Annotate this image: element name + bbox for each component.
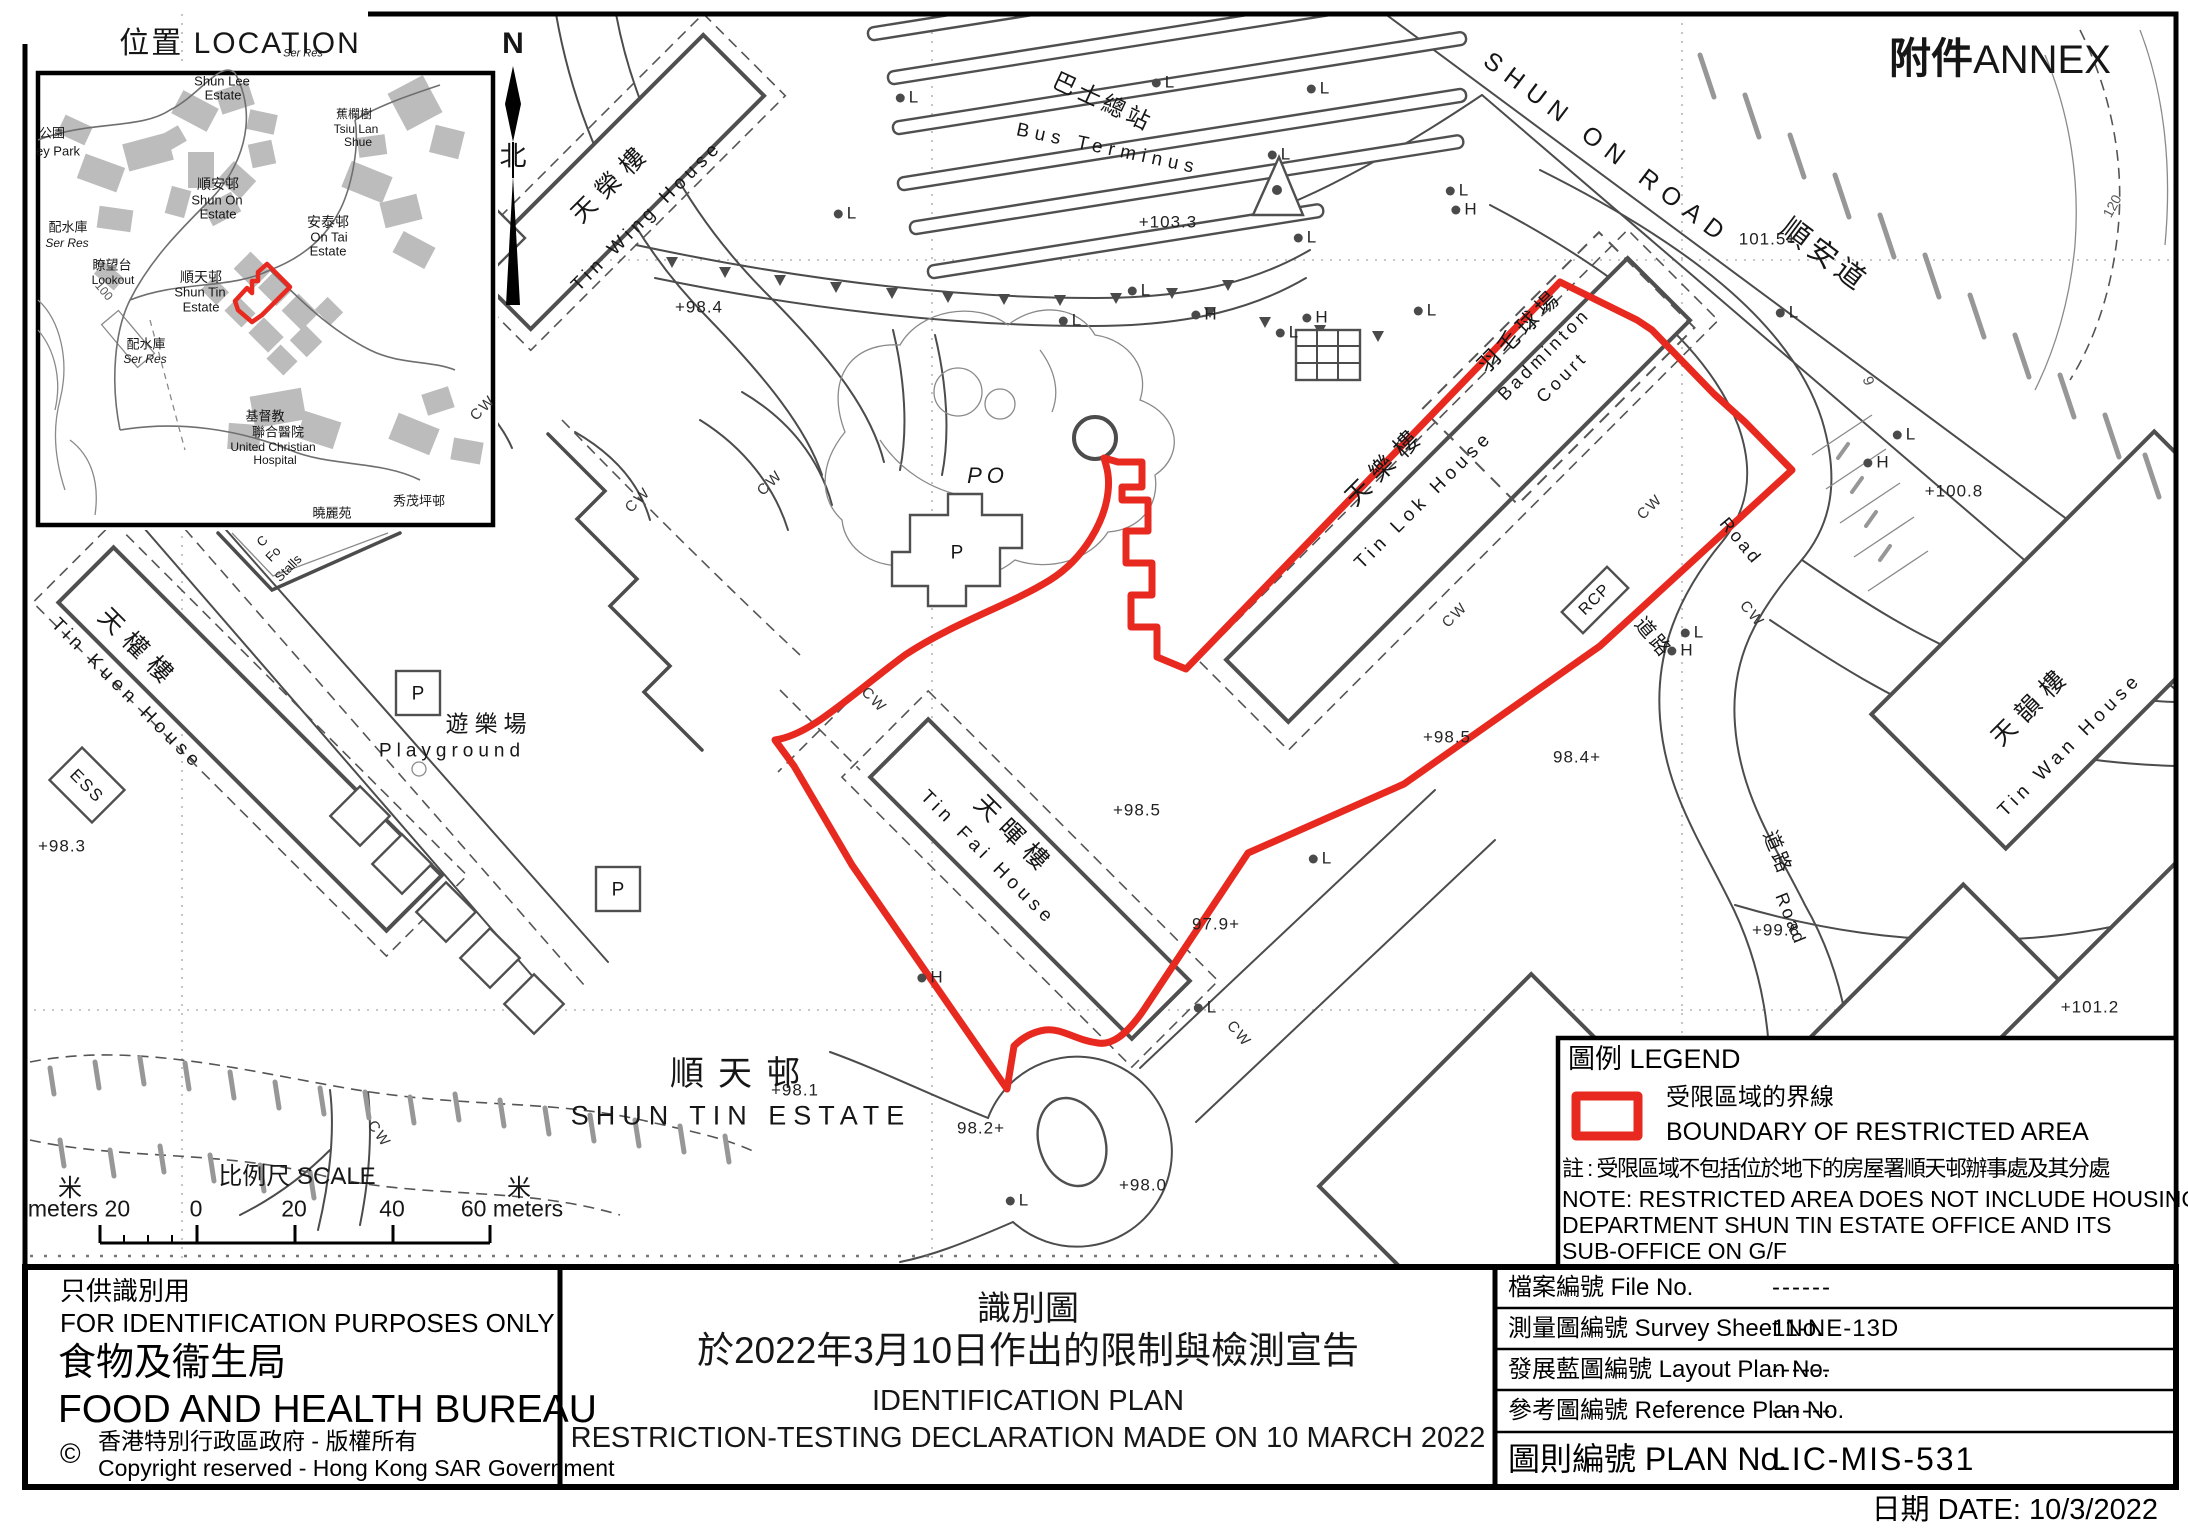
- table-row-value: ------: [1772, 1276, 1832, 1300]
- spot-height: +98.5: [1423, 729, 1471, 746]
- p-label: P: [951, 544, 964, 563]
- table-row-value: ------: [1772, 1399, 1832, 1423]
- spot-height: +99.8: [1752, 922, 1800, 939]
- date-label: 日期 DATE: 10/3/2022: [1872, 1496, 2158, 1525]
- inset-ser-res-top: Ser Res: [283, 49, 323, 60]
- scale-title: 比例尺 SCALE: [218, 1165, 375, 1189]
- roundabout: [988, 1057, 1172, 1247]
- scale-20: 20: [281, 1198, 307, 1221]
- footer-copyright-symbol: ©: [60, 1440, 81, 1468]
- spot-height: +98.0: [1119, 1177, 1167, 1194]
- hydrant-marker: H: [1302, 309, 1327, 326]
- table-row-label: 圖則編號 PLAN No.: [1508, 1443, 1787, 1475]
- inset-shun-on-en-2: Estate: [200, 208, 237, 221]
- plan-title-cn-1: 識別圖: [977, 1292, 1079, 1326]
- inset-on-tai-cn: 安泰邨: [307, 215, 349, 229]
- table-row-value: 11-NE-13D: [1772, 1317, 1899, 1341]
- hydrant-marker: H: [1451, 201, 1476, 218]
- inset-sau-mau-ping: 秀茂坪邨: [393, 495, 445, 508]
- inset-shun-on-en-1: Shun On: [191, 194, 242, 207]
- inset-on-tai-en-1: On Tai: [310, 231, 347, 244]
- scale-meters-20: meters 20: [28, 1198, 130, 1221]
- lamp-marker: L: [1194, 999, 1216, 1016]
- po-label: PO: [967, 465, 1009, 487]
- spot-height: +101.2: [2061, 999, 2119, 1016]
- inset-ser-res-2-en: Ser Res: [123, 353, 166, 365]
- lamp-marker: L: [1307, 80, 1329, 97]
- lamp-marker: L: [1414, 302, 1436, 319]
- inset-shun-tin-en-1: Shun Tin: [174, 286, 225, 299]
- inset-shun-on-cn: 順安邨: [197, 177, 239, 191]
- hydrant-marker: H: [1191, 306, 1216, 323]
- footer-copyright-cn: 香港特別行政區政府 - 版權所有: [98, 1430, 417, 1453]
- spot-height: +100.8: [1925, 483, 1983, 500]
- legend-note-en-3: SUB-OFFICE ON G/F: [1562, 1240, 1787, 1263]
- north-n-label: N: [502, 29, 524, 59]
- p-box-label-2: P: [612, 881, 625, 900]
- hydrant-marker: H: [1667, 642, 1692, 659]
- footer-copyright-en: Copyright reserved - Hong Kong SAR Gover…: [98, 1457, 614, 1480]
- inset-hospital-en-1: United Christian: [230, 441, 315, 453]
- lamp-marker: L: [1059, 312, 1081, 329]
- identification-plan-sheet: 附件 ANNEX N 北 位置 LOCATION Shun Lee Estate…: [0, 0, 2188, 1540]
- inset-park-en: ey Park: [36, 145, 80, 158]
- lamp-marker: L: [1006, 1192, 1028, 1209]
- footer-bureau-en: FOOD AND HEALTH BUREAU: [58, 1390, 597, 1429]
- hydrant-marker: H: [1863, 454, 1888, 471]
- inset-shun-lee-1: Shun Lee: [194, 75, 250, 88]
- lamp-marker: L: [834, 205, 856, 222]
- scale-60-meters: 60 meters: [461, 1198, 563, 1221]
- plan-title-en-2: RESTRICTION-TESTING DECLARATION MADE ON …: [571, 1424, 1486, 1453]
- lamp-marker: L: [1128, 282, 1150, 299]
- bus-terminus: [867, 0, 1467, 279]
- legend-title: 圖例 LEGEND: [1568, 1046, 1741, 1073]
- scale-bar: [100, 1225, 490, 1243]
- inset-hospital-cn-1: 基督教: [245, 410, 284, 423]
- inset-shun-tin-cn: 順天邨: [180, 270, 222, 284]
- footer-bureau-cn: 食物及衞生局: [58, 1344, 286, 1382]
- inset-hiu-lai-cn: 曉麗苑: [312, 507, 351, 520]
- table-row-value: ------: [1772, 1358, 1832, 1382]
- spot-height: 97.9+: [1192, 916, 1240, 933]
- inset-hospital-en-2: Hospital: [253, 454, 296, 466]
- inset-on-tai-en-2: Estate: [310, 245, 347, 258]
- spot-height: +98.1: [771, 1082, 819, 1099]
- lamp-marker: L: [1309, 850, 1331, 867]
- legend-boundary-cn: 受限區域的界線: [1666, 1086, 1834, 1110]
- footer-id-en: FOR IDENTIFICATION PURPOSES ONLY: [60, 1310, 555, 1336]
- inset-shun-lee-2: Estate: [205, 89, 242, 102]
- hydrant-marker: H: [917, 969, 942, 986]
- table-row-label: 檔案編號 File No.: [1508, 1276, 1693, 1300]
- inset-tsiu-en-2: Shue: [344, 136, 372, 148]
- inset-park-cn: 公園: [39, 127, 65, 140]
- spot-height: 101.5+: [1739, 231, 1797, 248]
- table-row-value: LIC-MIS-531: [1772, 1443, 1975, 1475]
- inset-shun-tin-en-2: Estate: [183, 301, 220, 314]
- spot-height: +98.5: [1113, 802, 1161, 819]
- lamp-marker: L: [1268, 146, 1290, 163]
- spot-height: 98.2+: [957, 1120, 1005, 1137]
- lamp-marker: L: [896, 89, 918, 106]
- legend-note-en-1: NOTE: RESTRICTED AREA DOES NOT INCLUDE H…: [1562, 1188, 2188, 1211]
- inset-hospital-cn-2: 聯合醫院: [252, 426, 304, 439]
- inset-ser-res-1-cn: 配水庫: [48, 221, 87, 234]
- inset-ser-res-2-cn: 配水庫: [126, 338, 165, 351]
- lamp-marker: L: [1276, 324, 1298, 341]
- legend-boundary-en: BOUNDARY OF RESTRICTED AREA: [1666, 1120, 2089, 1145]
- spot-height: +98.3: [38, 838, 86, 855]
- p-box-label-1: P: [412, 685, 425, 704]
- legend-note-en-2: DEPARTMENT SHUN TIN ESTATE OFFICE AND IT…: [1562, 1214, 2112, 1237]
- playground-label-en: Playground: [379, 742, 525, 761]
- lamp-marker: L: [1446, 182, 1468, 199]
- annex-label-en: ANNEX: [1973, 40, 2111, 80]
- spot-height: 98.4+: [1553, 749, 1601, 766]
- slope-hachures-ne: [1700, 30, 2168, 497]
- slope-hachures-sw: [30, 1055, 755, 1215]
- north-cn-label: 北: [500, 144, 527, 171]
- inset-tsiu-cn: 蕉欄樹: [336, 108, 372, 120]
- footer-id-cn: 只供識別用: [60, 1278, 190, 1304]
- playground-label-cn: 遊樂場: [446, 713, 533, 736]
- lamp-marker: L: [1893, 426, 1915, 443]
- scale-40: 40: [379, 1198, 405, 1221]
- lamp-marker: L: [1776, 304, 1798, 321]
- plan-title-cn-2: 於2022年3月10日作出的限制與檢測宣告: [697, 1332, 1359, 1369]
- annex-label-cn: 附件: [1889, 38, 1973, 80]
- lamp-marker: L: [1681, 624, 1703, 641]
- lamp-marker: L: [1294, 229, 1316, 246]
- inset-tsiu-en-1: Tsiu Lan: [334, 123, 379, 135]
- spot-height: +103.3: [1139, 214, 1197, 231]
- inset-lookout-cn: 瞭望台: [92, 259, 131, 272]
- inset-ser-res-1-en: Ser Res: [45, 237, 88, 249]
- scale-0: 0: [190, 1198, 203, 1221]
- spot-height: +98.4: [675, 299, 723, 316]
- legend-note-cn: 註 : 受限區域不包括位於地下的房屋署順天邨辦事處及其分處: [1562, 1158, 2109, 1180]
- lamp-marker: L: [1152, 74, 1174, 91]
- inset-title: 位置 LOCATION: [119, 29, 360, 59]
- estate-label-en: SHUN TIN ESTATE: [571, 1103, 912, 1130]
- plan-title-en-1: IDENTIFICATION PLAN: [872, 1387, 1184, 1416]
